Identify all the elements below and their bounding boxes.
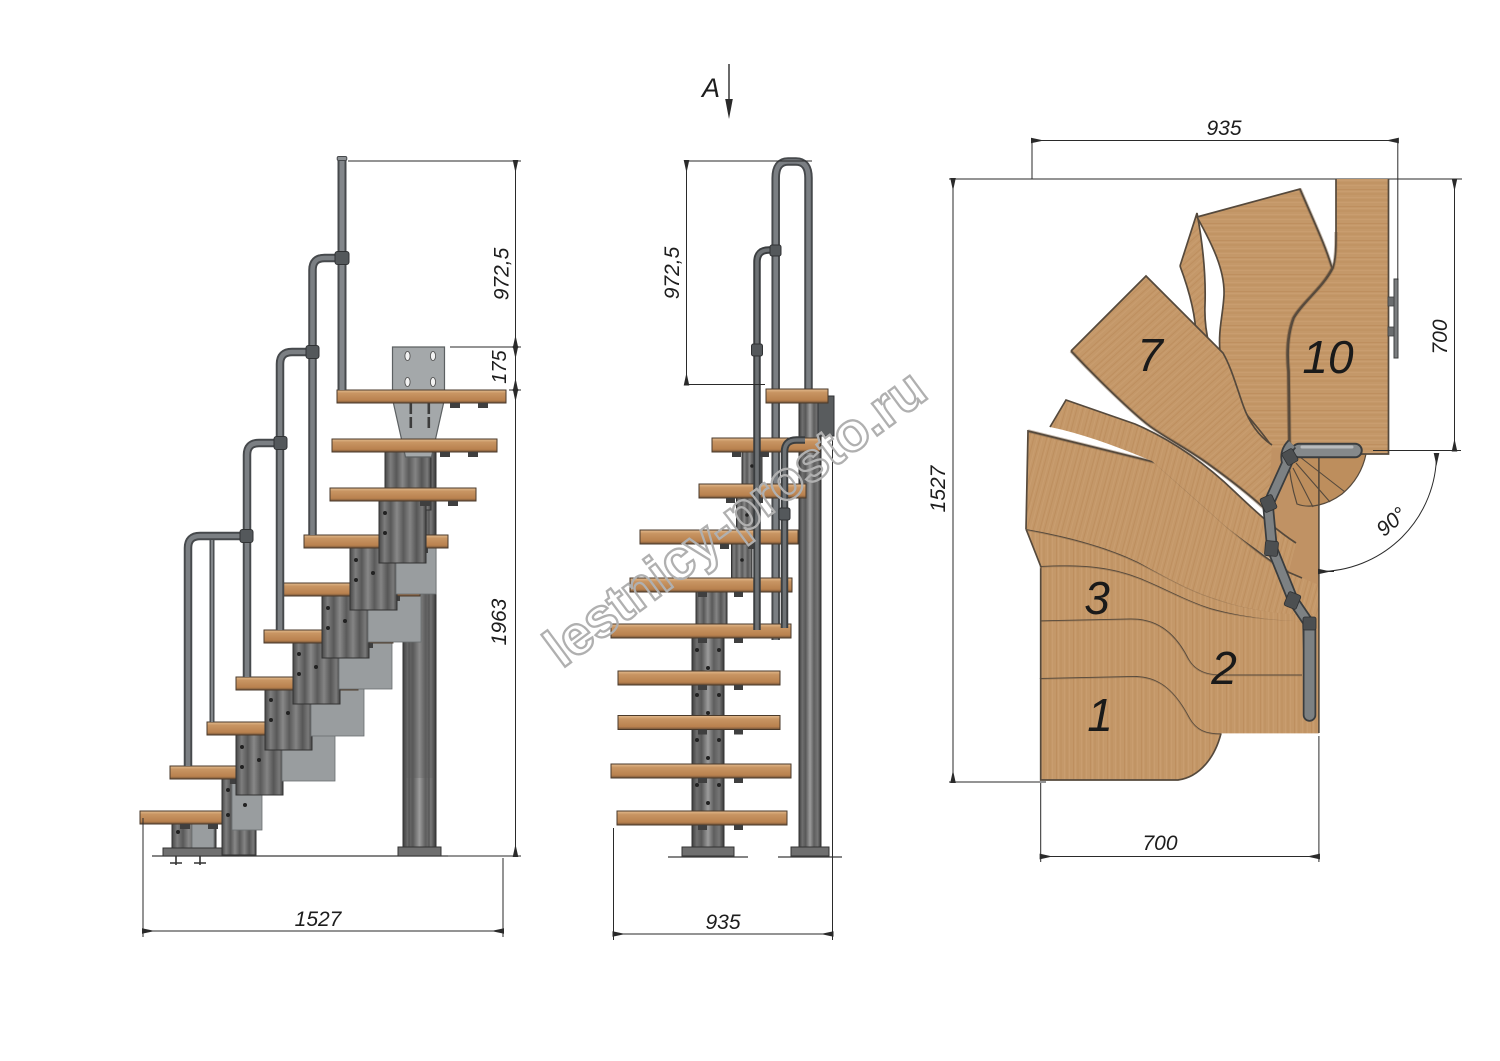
svg-text:972,5: 972,5 <box>661 246 684 299</box>
svg-text:3: 3 <box>1084 572 1110 624</box>
svg-text:972,5: 972,5 <box>491 247 514 300</box>
svg-text:935: 935 <box>1206 117 1241 140</box>
svg-text:1527: 1527 <box>927 464 950 512</box>
svg-text:1963: 1963 <box>488 598 511 645</box>
svg-text:1527: 1527 <box>295 908 343 931</box>
svg-text:2: 2 <box>1210 642 1237 694</box>
svg-text:175: 175 <box>489 349 511 383</box>
svg-text:A: A <box>700 73 720 103</box>
svg-text:7: 7 <box>1137 329 1164 381</box>
svg-text:700: 700 <box>1142 832 1177 855</box>
svg-text:935: 935 <box>705 911 740 934</box>
svg-text:700: 700 <box>1429 319 1452 354</box>
svg-text:10: 10 <box>1302 331 1354 383</box>
svg-text:1: 1 <box>1087 689 1113 741</box>
